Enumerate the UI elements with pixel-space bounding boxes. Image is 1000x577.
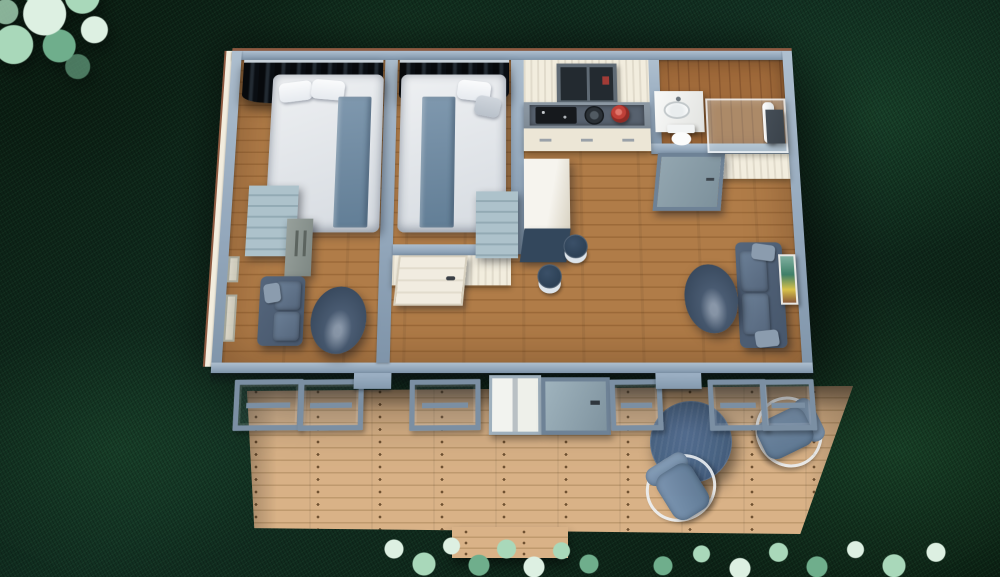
north-wall — [232, 51, 793, 60]
wall-pillar — [655, 373, 701, 389]
pillow — [278, 80, 313, 104]
seat-cushion — [742, 293, 771, 334]
house-cutaway — [211, 48, 814, 373]
bed-runner-blanket — [333, 97, 372, 228]
pillow — [473, 94, 502, 118]
bathroom-frosted-door — [653, 153, 726, 211]
kitchen-base-cabinets — [524, 128, 651, 151]
bedroom2-dresser — [476, 191, 519, 258]
south-window — [409, 379, 481, 431]
throw-pillow — [751, 243, 776, 262]
kitchen-island — [524, 159, 570, 231]
bed-runner-blanket — [420, 97, 456, 228]
white-double-door — [489, 375, 542, 435]
bar-stool — [536, 264, 563, 294]
throw-pillow — [754, 329, 780, 348]
bathroom-wall-cabinet — [765, 110, 785, 144]
red-pot — [611, 105, 630, 123]
south-wall — [211, 363, 814, 373]
kitchen-window — [557, 64, 618, 105]
west-wall-window — [227, 256, 240, 282]
bedroom1-wardrobe — [284, 219, 313, 277]
bar-stool — [562, 234, 589, 264]
south-wall-windows-band — [207, 373, 818, 435]
shrub-cluster-right — [628, 528, 978, 577]
seat-cushion — [273, 312, 300, 341]
throw-pillow — [263, 282, 282, 304]
bedroom2-door — [393, 255, 468, 305]
wall-art — [778, 254, 798, 304]
cooktop-pot — [584, 106, 604, 125]
shrub-cluster-center — [364, 522, 614, 577]
aerial-house-scene — [0, 0, 1000, 577]
toilet — [667, 125, 695, 146]
south-window — [232, 379, 303, 431]
glass-entry-door — [541, 377, 611, 435]
wall-pillar — [354, 373, 392, 389]
coffee-machine — [535, 107, 576, 124]
bedroom1-loveseat — [257, 276, 306, 346]
south-window — [759, 379, 817, 431]
tree-canopy — [0, 0, 191, 163]
